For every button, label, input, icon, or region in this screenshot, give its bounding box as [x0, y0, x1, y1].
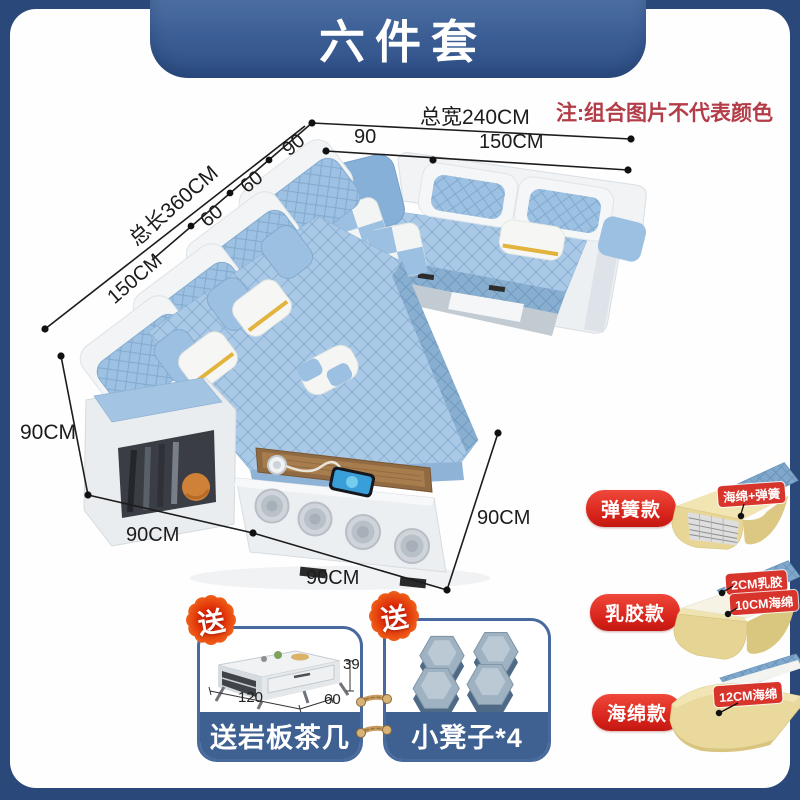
gift-burst-right-label: 送 — [362, 584, 427, 649]
product-image: 六件套 注:组合图片不代表颜色 总宽240CM 90 150CM 90 60 6… — [0, 0, 800, 800]
sponge-cushion-illustration — [660, 652, 800, 762]
gift-burst-left-label: 送 — [179, 588, 244, 653]
dim-top-150: 150CM — [479, 131, 543, 154]
tea-table-label: 送岩板茶几 — [210, 716, 350, 755]
variant-row-sponge: 海绵款 12CM海绵 — [578, 652, 800, 762]
dim-top-90: 90 — [354, 126, 376, 149]
banner: 六件套 — [150, 0, 646, 78]
gift-burst-right: 送 — [366, 588, 422, 644]
dim-total-width: 总宽240CM — [420, 101, 530, 131]
tea-table-strip: 送岩板茶几 — [200, 712, 360, 759]
tea-table-length: 120 — [238, 689, 263, 706]
wireless-charger — [268, 456, 286, 474]
stools-strip: 小凳子*4 — [386, 712, 548, 759]
dim-left-height: 90CM — [20, 421, 76, 445]
dim-bottom-mid: 90CM — [306, 567, 359, 590]
note-text: 注:组合图片不代表颜色 — [556, 97, 773, 127]
variant-row-spring: 弹簧款 海绵+弹簧 — [578, 450, 800, 560]
dim-bottom-left: 90CM — [126, 524, 179, 547]
tea-table-height: 39 — [343, 656, 360, 673]
dim-right-depth: 90CM — [477, 507, 530, 530]
banner-title: 六件套 — [309, 6, 487, 72]
variant-row-latex: 乳胶款 2CM乳胶 10CM海绵 — [578, 556, 800, 666]
stools-label: 小凳子*4 — [411, 716, 523, 755]
tea-table-depth: 60 — [324, 691, 341, 708]
gift-burst-left: 送 — [183, 592, 239, 648]
